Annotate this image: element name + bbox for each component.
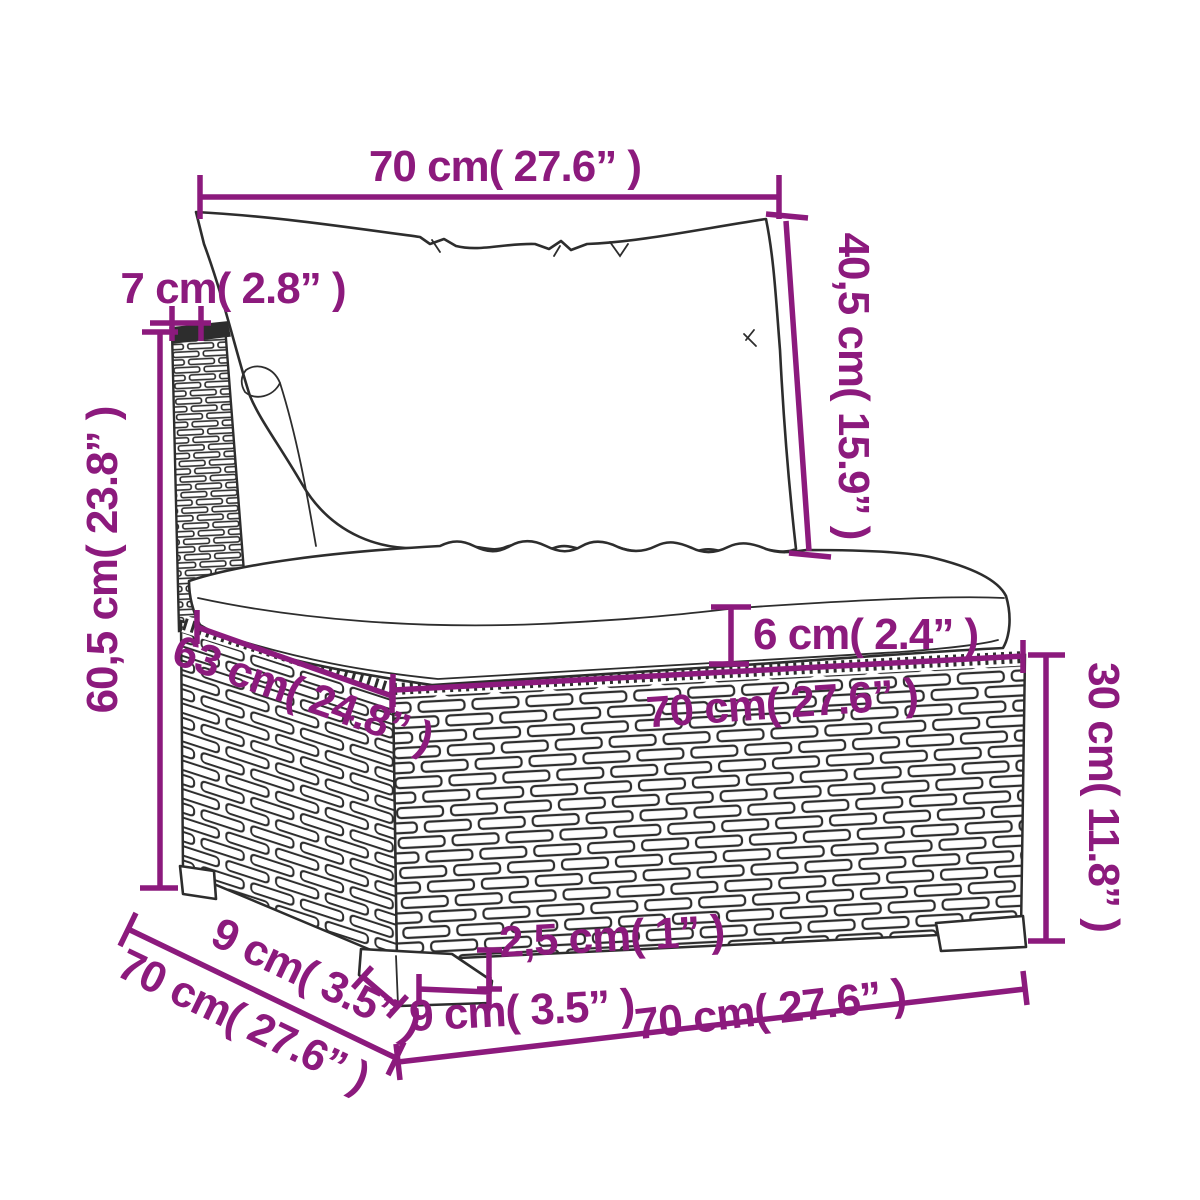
dim-base-height: 30 cm( 11.8” ) <box>1028 655 1128 941</box>
dim-backrest-depth-label: 7 cm( 2.8” ) <box>120 264 345 313</box>
dim-seat-back-height: 60,5 cm( 23.8” ) <box>78 332 178 888</box>
dim-overall-width-label: 70 cm( 27.6” ) <box>632 970 908 1049</box>
dim-base-height-line <box>1028 655 1065 941</box>
dim-back-cushion-width: 70 cm( 27.6” ) <box>200 142 779 219</box>
dim-base-height-label: 30 cm( 11.8” ) <box>1079 662 1128 932</box>
back-left-leg <box>180 866 216 899</box>
dim-back-cushion-width-label: 70 cm( 27.6” ) <box>369 142 641 191</box>
dim-leg-height: 2,5 cm( 1” ) <box>477 906 725 989</box>
front-right-leg <box>936 916 1026 951</box>
dim-seat-back-height-line <box>140 332 178 888</box>
dim-back-cushion-height-label: 40,5 cm( 15.9” ) <box>829 233 878 540</box>
diagram-canvas: 70 cm( 27.6” ) 7 cm( 2.8” ) 40,5 cm( 15.… <box>0 0 1200 1200</box>
dim-seat-cushion-thickness-label: 6 cm( 2.4” ) <box>753 610 978 659</box>
dim-leg-front-width-label: 9 cm( 3.5” ) <box>408 980 635 1041</box>
dim-leg-height-label: 2,5 cm( 1” ) <box>498 906 725 967</box>
furniture-dimension-diagram: 70 cm( 27.6” ) 7 cm( 2.8” ) 40,5 cm( 15.… <box>0 0 1200 1200</box>
dim-seat-back-height-label: 60,5 cm( 23.8” ) <box>78 407 127 714</box>
